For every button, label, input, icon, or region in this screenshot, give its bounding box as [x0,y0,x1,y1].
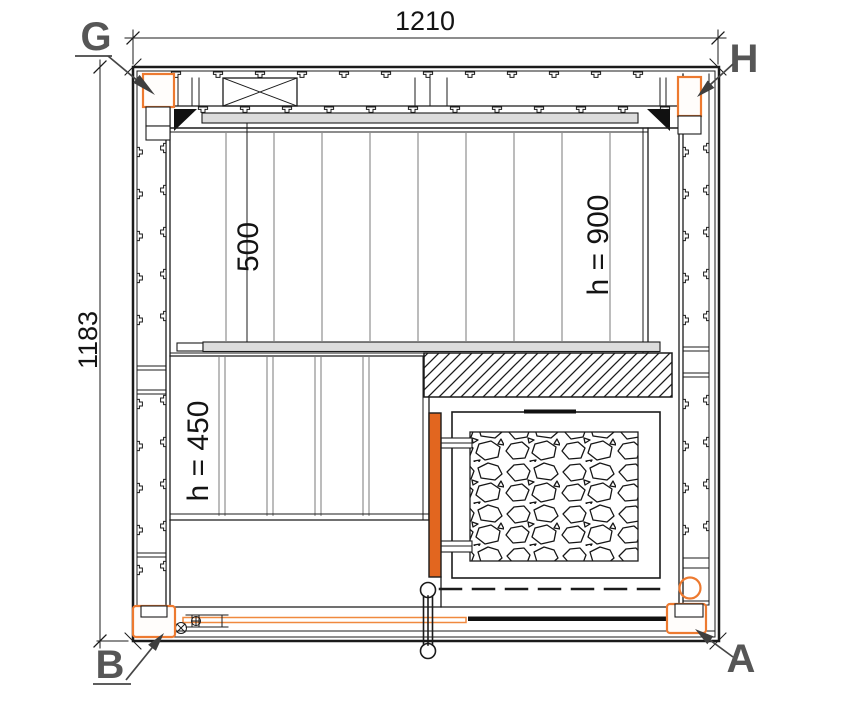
bench-front-edge-board [203,342,660,352]
corner-detail-H [678,77,701,134]
sauna-floor-plan-drawing: 1210 1183 [0,0,848,704]
corner-detail-B [133,606,175,637]
corner-label-G: G [80,15,111,59]
corner-label-B: B [96,643,125,687]
bench-right-height-text: h = 900 [582,195,615,296]
heater-platform-hatch [424,353,672,397]
corner-detail-A [667,604,706,633]
bench-depth-text: 500 [232,222,265,272]
bench-left-height-text: h = 450 [182,401,215,502]
heater-stones [470,432,638,561]
corner-label-A: A [727,637,756,681]
door-glass-panel [468,617,670,622]
corner-label-H: H [730,37,759,81]
corner-detail-G [143,74,174,140]
heater-top-mark [524,410,576,414]
dim-height-text: 1183 [73,311,103,369]
dim-width-text: 1210 [395,6,455,36]
bench-front-edge-cap [177,343,203,351]
heater-guard-rail [429,413,441,577]
